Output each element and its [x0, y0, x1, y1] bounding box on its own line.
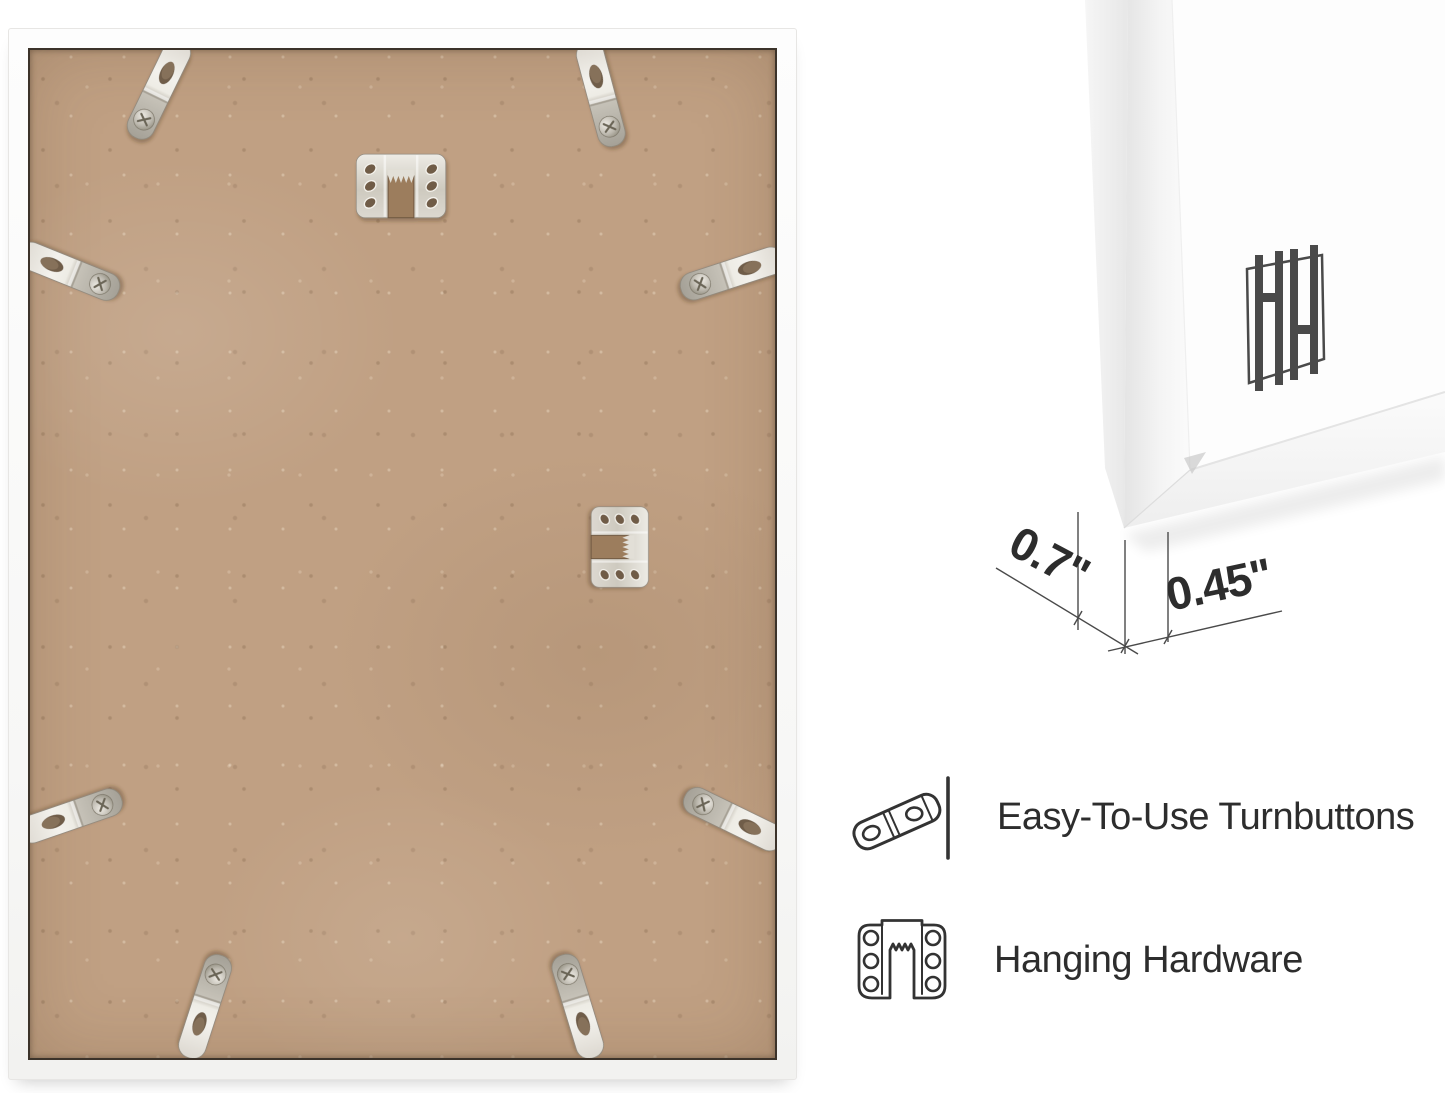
- frame-back-photo: [8, 28, 797, 1080]
- face-dimension-line: [1108, 611, 1282, 651]
- sawtooth-hanger: [591, 507, 648, 588]
- turnbutton-icon: [852, 770, 957, 865]
- hanging-hardware-icon: [852, 912, 952, 1008]
- feature-label: Hanging Hardware: [994, 939, 1303, 982]
- turnbutton: [573, 50, 628, 150]
- depth-dimension-label: 0.7": [1001, 516, 1098, 600]
- turnbutton: [679, 783, 775, 855]
- frame-side-face: [1085, 0, 1128, 528]
- frame-corner-detail: 0.7" 0.45": [950, 0, 1445, 700]
- sawtooth-hanger: [356, 154, 446, 218]
- face-dimension-label: 0.45": [1161, 548, 1276, 621]
- mdf-backing-board: [28, 48, 777, 1060]
- product-image: 0.7" 0.45" Easy-To-Use Turnbuttons: [0, 0, 1445, 1093]
- turnbutton: [549, 951, 607, 1058]
- turnbutton: [175, 951, 235, 1058]
- feature-hanging-hardware: Hanging Hardware: [852, 912, 1303, 1008]
- turnbutton: [677, 244, 775, 304]
- turnbutton: [30, 785, 126, 846]
- mat-paper: [1172, 0, 1445, 470]
- turnbutton: [30, 238, 124, 304]
- hardware-layer: [30, 50, 775, 1058]
- feature-label: Easy-To-Use Turnbuttons: [997, 796, 1414, 839]
- feature-turnbuttons: Easy-To-Use Turnbuttons: [852, 770, 1414, 865]
- turnbutton: [123, 50, 195, 144]
